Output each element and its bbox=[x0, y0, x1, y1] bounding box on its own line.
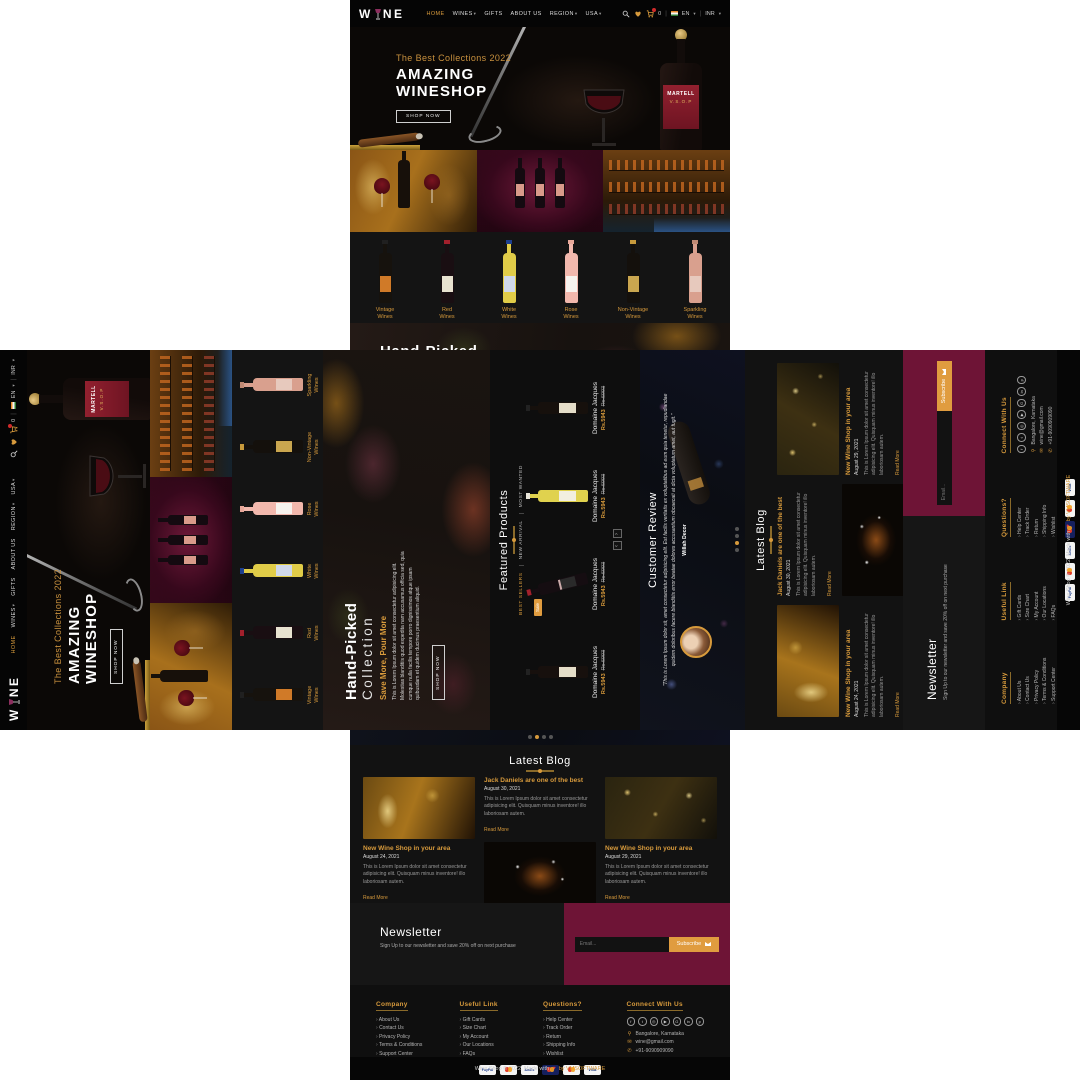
blog-post-title[interactable]: New Wine Shop in your area bbox=[845, 363, 852, 475]
footer-col-questions: Questions? Help Center Track Order Retur… bbox=[543, 993, 611, 1060]
footer-link-privacy-policy[interactable]: Privacy Policy bbox=[1034, 637, 1040, 705]
blog-image-restaurant[interactable] bbox=[777, 605, 839, 717]
footer-columns: Company About Us Contact Us Privacy Poli… bbox=[993, 376, 1060, 704]
blog-post-excerpt: This is Lorem Ipsum dolor sit amet conse… bbox=[484, 796, 596, 819]
nav-home[interactable]: HOME bbox=[427, 11, 445, 17]
hero-title: AMAZING WINESHOP bbox=[396, 66, 511, 101]
header-actions: 0 | EN ▾ | INR ▾ bbox=[622, 10, 721, 18]
footer-link-support-center[interactable]: Support Center bbox=[1051, 637, 1057, 705]
logo-wine[interactable]: W NE bbox=[359, 8, 405, 20]
bottle-variant: V.S.O.P bbox=[99, 381, 104, 417]
template-collage: W NE HOME WINES▾ GIFTS ABOUT US REGION▾ … bbox=[0, 0, 1080, 1080]
footer-link-faqs[interactable]: FAQs bbox=[1051, 553, 1057, 621]
wineshop-page: W NE HOME WINES▾ GIFTS ABOUT US REGION▾ … bbox=[0, 350, 1080, 730]
category-red-wines[interactable]: RedWines bbox=[241, 610, 323, 656]
map-pin-icon: ⚲ bbox=[1031, 448, 1037, 454]
blog-image-whiskey-splash[interactable] bbox=[484, 842, 596, 904]
pinterest-icon[interactable]: p bbox=[696, 1017, 705, 1026]
handpicked-content: Hand-Picked Collection Save More, Pour M… bbox=[380, 343, 555, 350]
cart-button[interactable] bbox=[10, 426, 18, 434]
wine-glass-icon bbox=[374, 9, 382, 20]
read-more-link[interactable]: Read More bbox=[827, 571, 833, 596]
product-name: Domaine Jacques bbox=[592, 549, 599, 619]
bottle-image bbox=[253, 379, 303, 392]
chevron-down-icon: ▾ bbox=[575, 11, 578, 17]
carousel-dot-active[interactable] bbox=[535, 735, 539, 739]
shop-now-button[interactable]: SHOP NOW bbox=[110, 629, 123, 684]
google-plus-icon[interactable]: G bbox=[1017, 399, 1026, 408]
bottle-brand: MARTELL bbox=[91, 381, 97, 417]
nav-wines[interactable]: WINES▾ bbox=[11, 604, 17, 628]
bottle-neck bbox=[39, 395, 65, 403]
hero-tagline: The Best Collections 2022 bbox=[396, 53, 511, 63]
blog-post-excerpt: This is Lorem Ipsum dolor sit amet conse… bbox=[864, 605, 887, 717]
carousel-dot[interactable] bbox=[528, 735, 532, 739]
carousel-arrows: ‹ › bbox=[613, 350, 622, 730]
nav-region[interactable]: REGION▾ bbox=[11, 502, 17, 530]
shop-now-button[interactable]: SHOP NOW bbox=[432, 645, 445, 700]
nav-usa[interactable]: USA▾ bbox=[11, 478, 17, 494]
subscribe-button[interactable]: Subscribe bbox=[937, 361, 952, 411]
phone-icon: ✆ bbox=[1048, 448, 1054, 454]
page-top-view: W NE HOME WINES▾ GIFTS ABOUT US REGION▾ … bbox=[350, 0, 730, 350]
footer-col-questions: Questions? Help Center Track Order Retur… bbox=[993, 470, 1060, 538]
review-content: Customer Review "This is Lorem Ipsum dol… bbox=[640, 350, 688, 730]
footer-link-size-chart[interactable]: Size Chart bbox=[1025, 553, 1031, 621]
tab-best-sellers[interactable]: BEST SELLERS bbox=[519, 566, 524, 621]
bottle-variant: V.S.O.P bbox=[663, 99, 699, 104]
category-carousel: VintageWines RedWines WhiteWines RoseWin… bbox=[350, 232, 730, 323]
footer-col-company: Company About Us Contact Us Privacy Poli… bbox=[376, 993, 444, 1060]
blog-image-restaurant[interactable] bbox=[363, 777, 475, 839]
newsletter-form: Subscribe bbox=[564, 903, 730, 985]
footer-link-our-locations[interactable]: Our Locations bbox=[1042, 553, 1048, 621]
handpicked-title: Hand-Picked bbox=[380, 343, 555, 350]
category-vintage-wines[interactable]: VintageWines bbox=[241, 672, 323, 718]
bottle-image bbox=[565, 253, 578, 303]
currency-selector[interactable]: INR bbox=[11, 365, 17, 374]
footer-link-help-center[interactable]: Help Center bbox=[1017, 470, 1023, 538]
bottle-silhouette bbox=[515, 168, 525, 208]
cognac-glass-image bbox=[86, 450, 150, 502]
chevron-down-icon: ▾ bbox=[11, 502, 17, 505]
review-quote: "This is Lorem Ipsum dolor sit, amet con… bbox=[663, 390, 679, 690]
footer-link-faqs[interactable]: FAQs bbox=[460, 1051, 528, 1057]
chevron-down-icon: ▾ bbox=[11, 604, 17, 607]
blog-post-excerpt: This is Lorem Ipsum dolor sit amet conse… bbox=[796, 484, 819, 596]
youtube-icon[interactable]: ▶ bbox=[1017, 411, 1026, 420]
blog-post-date: August 24, 2021 bbox=[854, 605, 860, 717]
bottle-silhouette bbox=[168, 515, 208, 525]
footer-link-return[interactable]: Return bbox=[1034, 470, 1040, 538]
bottle-image bbox=[503, 253, 516, 303]
footer-col-connect: Connect With Us f t ◎ ▶ G in p ⚲Bangalor… bbox=[627, 993, 705, 1060]
wineshop-page: W NE HOME WINES▾ GIFTS ABOUT US REGION▾ … bbox=[350, 0, 730, 350]
product-old-price: Rs.6993 bbox=[601, 650, 607, 671]
youtube-icon[interactable]: ▶ bbox=[661, 1017, 670, 1026]
hero-content: The Best Collections 2022 AMAZING WINESH… bbox=[396, 53, 511, 123]
category-white-wines[interactable]: WhiteWines bbox=[486, 241, 532, 323]
footer-link-gift-cards[interactable]: Gift Cards bbox=[1017, 553, 1023, 621]
wineshop-page: W NE HOME WINES▾ GIFTS ABOUT US REGION▾ … bbox=[350, 730, 730, 1080]
india-flag-icon bbox=[11, 402, 16, 409]
gallery-candles-wine-image[interactable] bbox=[150, 603, 232, 730]
newsletter-heading: Newsletter bbox=[380, 925, 564, 939]
blog-post: New Wine Shop in your area August 24, 20… bbox=[845, 605, 905, 717]
language-selector[interactable]: EN bbox=[682, 11, 690, 17]
category-non-vintage-wines[interactable]: Non-VintageWines bbox=[610, 241, 656, 323]
corkscrew-spiral-decor bbox=[122, 577, 146, 614]
twitter-icon[interactable]: t bbox=[638, 1017, 647, 1026]
facebook-icon[interactable]: f bbox=[627, 1017, 636, 1026]
shifted-page-holder: W NE HOME WINES▾ GIFTS ABOUT US REGION▾ … bbox=[350, 730, 730, 1080]
featured-heading: Featured Products bbox=[498, 350, 510, 730]
footer-link-shipping-info[interactable]: Shipping Info bbox=[1042, 470, 1048, 538]
shelf-row-decor bbox=[204, 356, 215, 471]
blog-post-title[interactable]: New Wine Shop in your area bbox=[845, 605, 852, 717]
shelf-row-decor bbox=[609, 182, 724, 193]
cart-badge bbox=[8, 424, 12, 428]
read-more-link[interactable]: Read More bbox=[895, 692, 901, 717]
envelope-icon bbox=[705, 942, 711, 947]
blog-post-excerpt: This is Lorem Ipsum dolor sit amet conse… bbox=[864, 363, 887, 475]
footer-link-shipping-info[interactable]: Shipping Info bbox=[543, 1042, 611, 1048]
chevron-down-icon: ▾ bbox=[11, 384, 17, 386]
bottle-label: MARTELL V.S.O.P bbox=[85, 381, 129, 417]
product-price: Rs.5943 bbox=[601, 497, 607, 518]
chevron-down-icon: ▾ bbox=[693, 11, 695, 17]
newsletter-section: Newsletter Sign Up to our newsletter and… bbox=[903, 350, 985, 730]
shelf-row-decor bbox=[609, 204, 724, 215]
page-rotated-view: W NE HOME WINES▾ GIFTS ABOUT US REGION▾ … bbox=[0, 350, 1080, 730]
product-bottle-image bbox=[537, 572, 588, 596]
logo-wine[interactable]: W NE bbox=[8, 676, 20, 722]
wine-glass-icon bbox=[9, 698, 20, 706]
blog-image-whiskey-splash[interactable] bbox=[842, 484, 904, 596]
google-plus-icon[interactable]: G bbox=[673, 1017, 682, 1026]
product-row: Domaine Jacques Rs.5943Rs.6993 Sale Doma… bbox=[531, 350, 607, 730]
nav-gifts[interactable]: GIFTS bbox=[11, 577, 17, 595]
footer-link-wishlist[interactable]: Wishlist bbox=[543, 1051, 611, 1057]
footer-link-help-center[interactable]: Help Center bbox=[543, 1017, 611, 1023]
hero-title: AMAZING WINESHOP bbox=[66, 569, 101, 684]
footer-link-size-chart[interactable]: Size Chart bbox=[460, 1025, 528, 1031]
header-actions: 0 | EN ▾ | INR ▾ bbox=[10, 359, 18, 458]
bottle-image bbox=[253, 627, 303, 640]
bar-glow-decor bbox=[654, 218, 730, 232]
customer-review-section: Customer Review "This is Lorem Ipsum dol… bbox=[350, 730, 730, 745]
newsletter-text: Newsletter Sign Up to our newsletter and… bbox=[903, 516, 985, 730]
tab-new-arrival[interactable]: NEW ARRIVAL bbox=[519, 514, 524, 566]
envelope-icon bbox=[942, 369, 947, 375]
blog-post: Jack Daniels are one of the best August … bbox=[484, 777, 596, 837]
rotated-page-holder: W NE HOME WINES▾ GIFTS ABOUT US REGION▾ … bbox=[0, 350, 1080, 730]
footer-link-about-us[interactable]: About Us bbox=[1017, 637, 1023, 705]
category-rose-wines[interactable]: RoseWines bbox=[548, 241, 594, 323]
read-more-link[interactable]: Read More bbox=[605, 895, 630, 901]
blog-post: Jack Daniels are one of the best August … bbox=[777, 484, 837, 596]
handpicked-content: Hand-Picked Collection Save More, Pour M… bbox=[343, 525, 445, 700]
newsletter-form: Subscribe bbox=[903, 350, 985, 516]
bottle-image bbox=[627, 253, 640, 303]
handpicked-body: This is Lorem Ipsum dolor sit amet conse… bbox=[392, 544, 423, 700]
main-nav: HOME WINES▾ GIFTS ABOUT US REGION▾ USA▾ bbox=[427, 11, 602, 17]
shelf-row-decor bbox=[609, 160, 724, 171]
newsletter-subtext: Sign Up to our newsletter and save 20% o… bbox=[380, 943, 564, 949]
map-pin-icon: ⚲ bbox=[627, 1031, 633, 1037]
blog-column: New Wine Shop in your area August 29, 20… bbox=[777, 363, 905, 475]
search-icon[interactable] bbox=[10, 450, 18, 458]
footer-email[interactable]: ✉wine@gmail.com bbox=[627, 1039, 705, 1045]
search-icon[interactable] bbox=[622, 10, 630, 18]
footer-phone[interactable]: ✆+91-9090909090 bbox=[1048, 376, 1054, 454]
footer-location: ⚲Bangalore, Karnataka bbox=[1031, 376, 1037, 454]
featured-products-section: Featured Products BEST SELLERS NEW ARRIV… bbox=[490, 350, 640, 730]
category-sparkling-wines[interactable]: SparklingWines bbox=[241, 362, 323, 408]
bottle-image bbox=[253, 441, 303, 454]
nav-region[interactable]: REGION▾ bbox=[550, 11, 578, 17]
blog-post-title[interactable]: New Wine Shop in your area bbox=[363, 845, 475, 852]
footer-link-my-account[interactable]: My Account bbox=[460, 1034, 528, 1040]
cognac-glass-image bbox=[578, 86, 630, 150]
handpicked-title: Hand-Picked bbox=[343, 525, 360, 700]
footer-col-connect: Connect With Us f t ◎ ▶ G in p ⚲Bangalor… bbox=[993, 376, 1060, 454]
footer-phone[interactable]: ✆+91-9090909090 bbox=[627, 1048, 705, 1054]
carousel-dot[interactable] bbox=[735, 528, 739, 532]
product-name: Domaine Jacques bbox=[592, 461, 599, 531]
gallery-bottles-image[interactable] bbox=[477, 150, 604, 232]
carousel-dot[interactable] bbox=[735, 535, 739, 539]
carousel-dot[interactable] bbox=[735, 549, 739, 553]
blog-heading: Latest Blog bbox=[755, 350, 767, 730]
hero-section: MARTELL V.S.O.P The Best Collections 202… bbox=[350, 27, 730, 150]
read-more-link[interactable]: Read More bbox=[363, 895, 388, 901]
nav-about-us[interactable]: ABOUT US bbox=[11, 538, 17, 569]
blog-heading: Latest Blog bbox=[350, 755, 730, 767]
wishlist-heart-icon[interactable] bbox=[10, 438, 18, 446]
product-price: Rs.5943 bbox=[601, 673, 607, 694]
review-carousel-dots bbox=[350, 735, 730, 739]
product-name: Domaine Jacques bbox=[592, 637, 599, 707]
site-footer: Company About Us Contact Us Privacy Poli… bbox=[985, 350, 1057, 730]
nav-gifts[interactable]: GIFTS bbox=[484, 11, 502, 17]
logo-text-w: W bbox=[359, 8, 373, 20]
linkedin-icon[interactable]: in bbox=[1017, 388, 1026, 397]
shop-now-button[interactable]: SHOP NOW bbox=[396, 110, 451, 123]
footer-link-support-center[interactable]: Support Center bbox=[376, 1051, 444, 1057]
gallery-bottles-image[interactable] bbox=[150, 477, 232, 604]
product-card[interactable]: Domaine Jacques Rs.5943Rs.6993 bbox=[531, 461, 607, 531]
nav-home[interactable]: HOME bbox=[11, 635, 17, 653]
site-header: W NE HOME WINES▾ GIFTS ABOUT US REGION▾ … bbox=[350, 0, 730, 27]
chevron-down-icon: ▾ bbox=[719, 11, 721, 17]
category-non-vintage-wines[interactable]: Non-VintageWines bbox=[241, 424, 323, 470]
footer-link-track-order[interactable]: Track Order bbox=[1025, 470, 1031, 538]
pinterest-icon[interactable]: p bbox=[1017, 376, 1026, 385]
blog-image-bokeh-lights[interactable] bbox=[605, 777, 717, 839]
carousel-prev-button[interactable]: ‹ bbox=[613, 542, 622, 551]
footer-link-gift-cards[interactable]: Gift Cards bbox=[460, 1017, 528, 1023]
reviewer-avatar bbox=[680, 626, 712, 658]
email-input[interactable] bbox=[575, 937, 669, 952]
footer-link-contact-us[interactable]: Contact Us bbox=[1025, 637, 1031, 705]
language-selector[interactable]: EN bbox=[11, 391, 17, 399]
mail-icon: ✉ bbox=[1039, 448, 1045, 454]
blog-post-date: August 29, 2021 bbox=[854, 363, 860, 475]
tab-most-wanted[interactable]: MOST WANTED bbox=[519, 459, 524, 514]
footer-link-terms[interactable]: Terms & Conditions bbox=[376, 1042, 444, 1048]
blog-post-date: August 30, 2021 bbox=[484, 786, 596, 792]
product-card[interactable]: Sale Domaine Jacques Rs.5943Rs.6993 bbox=[531, 549, 607, 619]
footer-link-wishlist[interactable]: Wishlist bbox=[1051, 470, 1057, 538]
page-bottom-view: W NE HOME WINES▾ GIFTS ABOUT US REGION▾ … bbox=[350, 730, 730, 1080]
cart-button[interactable] bbox=[646, 10, 654, 18]
blog-post-date: August 29, 2021 bbox=[605, 854, 717, 860]
email-input[interactable] bbox=[937, 411, 952, 505]
cart-count: 0 bbox=[658, 11, 661, 17]
chevron-down-icon: ▾ bbox=[599, 11, 602, 17]
product-bottle-image bbox=[538, 666, 588, 678]
bottle-silhouette bbox=[535, 168, 545, 208]
blog-post-excerpt: This is Lorem Ipsum dolor sit amet conse… bbox=[605, 864, 717, 887]
category-sparkling-wines[interactable]: SparklingWines bbox=[672, 241, 718, 323]
logo-text-ne: NE bbox=[8, 676, 20, 698]
sale-badge: Sale bbox=[534, 599, 542, 616]
product-name: Domaine Jacques bbox=[592, 373, 599, 443]
featured-tabs: BEST SELLERS NEW ARRIVAL MOST WANTED bbox=[519, 350, 524, 730]
bottle-silhouette bbox=[555, 168, 565, 208]
product-price: Rs.5943 bbox=[601, 585, 607, 606]
carousel-dot[interactable] bbox=[549, 735, 553, 739]
site-footer: Company About Us Contact Us Privacy Poli… bbox=[350, 985, 730, 1057]
read-more-link[interactable]: Read More bbox=[484, 827, 509, 833]
newsletter-section: Newsletter Sign Up to our newsletter and… bbox=[350, 903, 730, 985]
wishlist-heart-icon[interactable] bbox=[634, 10, 642, 18]
blog-column: Jack Daniels are one of the best August … bbox=[777, 484, 905, 596]
blog-post: New Wine Shop in your area August 24, 20… bbox=[363, 845, 475, 905]
category-vintage-wines[interactable]: VintageWines bbox=[362, 241, 408, 323]
carousel-dot[interactable] bbox=[542, 735, 546, 739]
corkscrew-spiral-decor bbox=[467, 122, 504, 146]
blog-post-title[interactable]: Jack Daniels are one of the best bbox=[484, 777, 596, 784]
customer-review-section: Customer Review "This is Lorem Ipsum dol… bbox=[640, 350, 745, 730]
blog-grid: New Wine Shop in your area August 24, 20… bbox=[350, 777, 730, 905]
linkedin-icon[interactable]: in bbox=[684, 1017, 693, 1026]
carousel-dot-active[interactable] bbox=[735, 542, 739, 546]
footer-link-about-us[interactable]: About Us bbox=[376, 1017, 444, 1023]
carousel-next-button[interactable]: › bbox=[613, 530, 622, 539]
twitter-icon[interactable]: t bbox=[1017, 434, 1026, 443]
blog-post-title[interactable]: Jack Daniels are one of the best bbox=[777, 484, 784, 596]
logo-text-w: W bbox=[8, 707, 20, 721]
bottle-silhouette bbox=[168, 555, 208, 565]
blog-column: New Wine Shop in your area August 24, 20… bbox=[777, 605, 905, 717]
nav-usa[interactable]: USA▾ bbox=[586, 11, 602, 17]
divider: | bbox=[700, 11, 702, 17]
handpicked-tagline: Save More, Pour More bbox=[379, 525, 388, 700]
footer-columns: Company About Us Contact Us Privacy Poli… bbox=[376, 993, 704, 1060]
blog-image-bokeh-lights[interactable] bbox=[777, 363, 839, 475]
product-card[interactable]: Domaine Jacques Rs.5943Rs.6993 bbox=[531, 373, 607, 443]
category-red-wines[interactable]: RedWines bbox=[424, 241, 470, 323]
heading-divider bbox=[770, 526, 772, 554]
bottle-silhouette bbox=[168, 535, 208, 545]
nav-about-us[interactable]: ABOUT US bbox=[511, 11, 542, 17]
divider: | bbox=[11, 379, 17, 381]
product-bottle-image bbox=[538, 490, 588, 502]
footer-link-return[interactable]: Return bbox=[543, 1034, 611, 1040]
blog-post-title[interactable]: New Wine Shop in your area bbox=[605, 845, 717, 852]
subscribe-button[interactable]: Subscribe bbox=[669, 937, 719, 952]
newsletter-heading: Newsletter bbox=[925, 516, 939, 700]
divider: | bbox=[665, 11, 667, 17]
category-white-wines[interactable]: WhiteWines bbox=[241, 548, 323, 594]
read-more-link[interactable]: Read More bbox=[895, 450, 901, 475]
bottle-image bbox=[253, 503, 303, 516]
facebook-icon[interactable]: f bbox=[1017, 445, 1026, 454]
hero-section: MARTELL V.S.O.P The Best Collections 202… bbox=[27, 350, 150, 730]
bottle-silhouette bbox=[160, 670, 208, 682]
footer-email[interactable]: ✉wine@gmail.com bbox=[1039, 376, 1045, 454]
category-rose-wines[interactable]: RoseWines bbox=[241, 486, 323, 532]
shelf-row-decor bbox=[182, 356, 193, 471]
footer-link-privacy-policy[interactable]: Privacy Policy bbox=[376, 1034, 444, 1040]
bottle-silhouette bbox=[398, 160, 410, 208]
divider: | bbox=[11, 413, 17, 415]
blog-post: New Wine Shop in your area August 29, 20… bbox=[845, 363, 905, 475]
footer-location: ⚲Bangalore, Karnataka bbox=[627, 1031, 705, 1037]
copyright-bar: Wine Shop © 2022. Made with ♥ by VMSOFTW… bbox=[350, 1057, 730, 1080]
instagram-icon[interactable]: ◎ bbox=[1017, 422, 1026, 431]
cart-badge bbox=[652, 8, 656, 12]
nav-wines[interactable]: WINES▾ bbox=[453, 11, 477, 17]
footer-col-company: Company About Us Contact Us Privacy Poli… bbox=[993, 637, 1060, 705]
handpicked-section: Hand-Picked Collection Save More, Pour M… bbox=[323, 350, 490, 730]
review-carousel-dots bbox=[735, 350, 739, 730]
blog-post-excerpt: This is Lorem Ipsum dolor sit amet conse… bbox=[363, 864, 475, 887]
bar-glow-decor bbox=[218, 350, 232, 426]
hero-tagline: The Best Collections 2022 bbox=[53, 569, 63, 684]
gallery-candles-wine-image[interactable] bbox=[350, 150, 477, 232]
footer-link-terms[interactable]: Terms & Conditions bbox=[1042, 637, 1048, 705]
product-old-price: Rs.6993 bbox=[601, 386, 607, 407]
product-card[interactable]: Domaine Jacques Rs.5943Rs.6993 bbox=[531, 637, 607, 707]
gallery-bar-shelf-image[interactable] bbox=[150, 350, 232, 477]
chevron-down-icon: ▾ bbox=[474, 11, 477, 17]
footer-link-track-order[interactable]: Track Order bbox=[543, 1025, 611, 1031]
blog-column: Jack Daniels are one of the best August … bbox=[484, 777, 596, 905]
bottle-neck bbox=[677, 39, 685, 65]
footer-link-my-account[interactable]: My Account bbox=[1034, 553, 1040, 621]
social-icons: f t ◎ ▶ G in p bbox=[1017, 376, 1026, 454]
heading-divider bbox=[513, 526, 515, 554]
bottle-image bbox=[253, 689, 303, 702]
product-price: Rs.5943 bbox=[601, 409, 607, 430]
cart-count: 0 bbox=[11, 419, 17, 422]
instagram-icon[interactable]: ◎ bbox=[650, 1017, 659, 1026]
newsletter-text: Newsletter Sign Up to our newsletter and… bbox=[350, 903, 564, 985]
shelf-row-decor bbox=[160, 356, 171, 471]
mail-icon: ✉ bbox=[627, 1039, 633, 1045]
currency-selector[interactable]: INR bbox=[705, 11, 714, 17]
wine-glass-decor bbox=[178, 690, 194, 706]
footer-link-contact-us[interactable]: Contact Us bbox=[376, 1025, 444, 1031]
blog-post-date: August 24, 2021 bbox=[363, 854, 475, 860]
footer-link-our-locations[interactable]: Our Locations bbox=[460, 1042, 528, 1048]
chevron-down-icon: ▾ bbox=[11, 359, 17, 361]
gallery-bar-shelf-image[interactable] bbox=[603, 150, 730, 232]
bottle-image bbox=[379, 253, 392, 303]
